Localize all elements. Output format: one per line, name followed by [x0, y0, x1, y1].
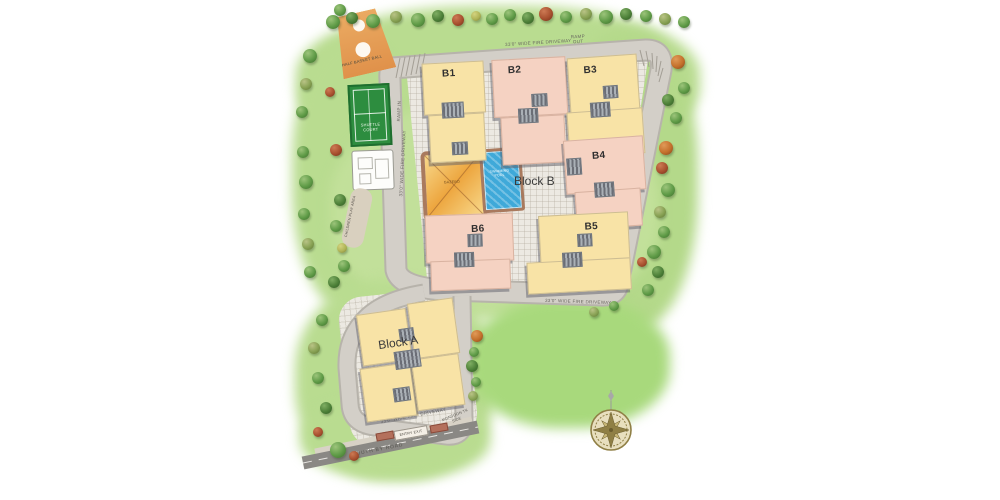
b2-core-2 — [531, 93, 548, 107]
tree-icon — [652, 266, 664, 278]
b6-core-2 — [467, 234, 482, 248]
tree-icon — [658, 226, 670, 238]
tree-icon — [326, 15, 340, 29]
tree-icon — [471, 11, 481, 21]
b2-label: B2 — [508, 65, 522, 77]
tree-icon — [432, 10, 444, 22]
tree-icon — [620, 8, 632, 20]
tree-icon — [411, 13, 425, 27]
tree-icon — [609, 301, 619, 311]
b6-core-1 — [454, 252, 475, 268]
structure-inner-2 — [375, 158, 390, 178]
tree-icon — [659, 141, 673, 155]
building-b6: B6 — [419, 208, 522, 297]
tree-icon — [334, 194, 346, 206]
b1-wing-lower — [428, 112, 486, 163]
tree-icon — [300, 78, 312, 90]
b1-label: B1 — [442, 68, 456, 80]
building-block-a: Block A — [337, 290, 484, 448]
tree-icon — [656, 162, 668, 174]
b3-label: B3 — [583, 64, 597, 76]
tree-icon — [320, 402, 332, 414]
b4-core-1 — [594, 181, 615, 197]
tree-icon — [338, 260, 350, 272]
b1-core-1 — [442, 102, 465, 119]
tree-icon — [312, 372, 324, 384]
tree-icon — [661, 183, 675, 197]
tree-icon — [452, 14, 464, 26]
tree-icon — [466, 360, 478, 372]
compass-rose-icon — [578, 388, 644, 458]
block-b-label: Block B — [514, 174, 555, 188]
tree-icon — [504, 9, 516, 21]
structure-inner-3 — [359, 173, 371, 184]
b4-core-2 — [566, 158, 582, 176]
tree-icon — [299, 175, 313, 189]
tree-icon — [642, 284, 654, 296]
tree-icon — [304, 266, 316, 278]
tree-icon — [637, 257, 647, 267]
tree-icon — [589, 307, 599, 317]
b3-core-1 — [590, 102, 611, 118]
tree-icon — [308, 342, 320, 354]
block-a-core-1 — [393, 349, 421, 370]
tree-icon — [330, 144, 342, 156]
tree-icon — [580, 8, 592, 20]
tree-icon — [390, 11, 402, 23]
tree-icon — [471, 330, 483, 342]
tree-icon — [297, 146, 309, 158]
tree-icon — [469, 347, 479, 357]
building-b5: B5 — [520, 207, 636, 299]
tree-icon — [678, 82, 690, 94]
b4-label: B4 — [592, 150, 606, 162]
road-label-ramp-out: RAMP OUT — [568, 33, 589, 45]
tree-icon — [328, 276, 340, 288]
tree-icon — [296, 106, 308, 118]
tree-icon — [647, 245, 661, 259]
block-a-core-3 — [393, 386, 412, 402]
road-label-ramp-in: RAMP IN — [396, 95, 402, 121]
tree-icon — [334, 4, 346, 16]
tree-icon — [678, 16, 690, 28]
tree-icon — [471, 377, 481, 387]
b5-label: B5 — [584, 221, 598, 233]
b5-core-2 — [577, 233, 593, 247]
tree-icon — [330, 442, 346, 458]
shuttle-court: SHUTTLE COURT — [347, 83, 392, 147]
shuttle-court-label: SHUTTLE COURT — [353, 121, 387, 133]
tree-icon — [303, 49, 317, 63]
tree-icon — [640, 10, 652, 22]
tree-icon — [337, 243, 347, 253]
b2-core-1 — [518, 108, 539, 124]
tree-icon — [599, 10, 613, 24]
tree-icon — [654, 206, 666, 218]
b1-core-2 — [452, 141, 469, 155]
tree-icon — [560, 11, 572, 23]
building-b1: B1 — [417, 56, 492, 166]
tree-icon — [539, 7, 553, 21]
tree-icon — [522, 12, 534, 24]
structure-outline — [351, 149, 394, 190]
swimming-pool-label: SWIMMING POOL — [484, 168, 515, 179]
tree-icon — [325, 87, 335, 97]
tree-icon — [468, 391, 478, 401]
tree-icon — [366, 14, 380, 28]
tree-icon — [330, 220, 342, 232]
tree-icon — [486, 13, 498, 25]
tree-icon — [298, 208, 310, 220]
b5-core-1 — [562, 252, 583, 268]
b6-label: B6 — [471, 223, 485, 234]
tree-icon — [659, 13, 671, 25]
tree-icon — [671, 55, 685, 69]
site-plan: 33'0" WIDE FIRE DRIVEWAY RAMP OUT 33'0" … — [0, 0, 1000, 500]
structure-inner-1 — [358, 157, 373, 170]
tree-icon — [670, 112, 682, 124]
tree-icon — [313, 427, 323, 437]
tree-icon — [662, 94, 674, 106]
tree-icon — [302, 238, 314, 250]
b3-core-2 — [603, 85, 619, 99]
tree-icon — [346, 12, 358, 24]
tree-icon — [316, 314, 328, 326]
tree-icon — [349, 451, 359, 461]
